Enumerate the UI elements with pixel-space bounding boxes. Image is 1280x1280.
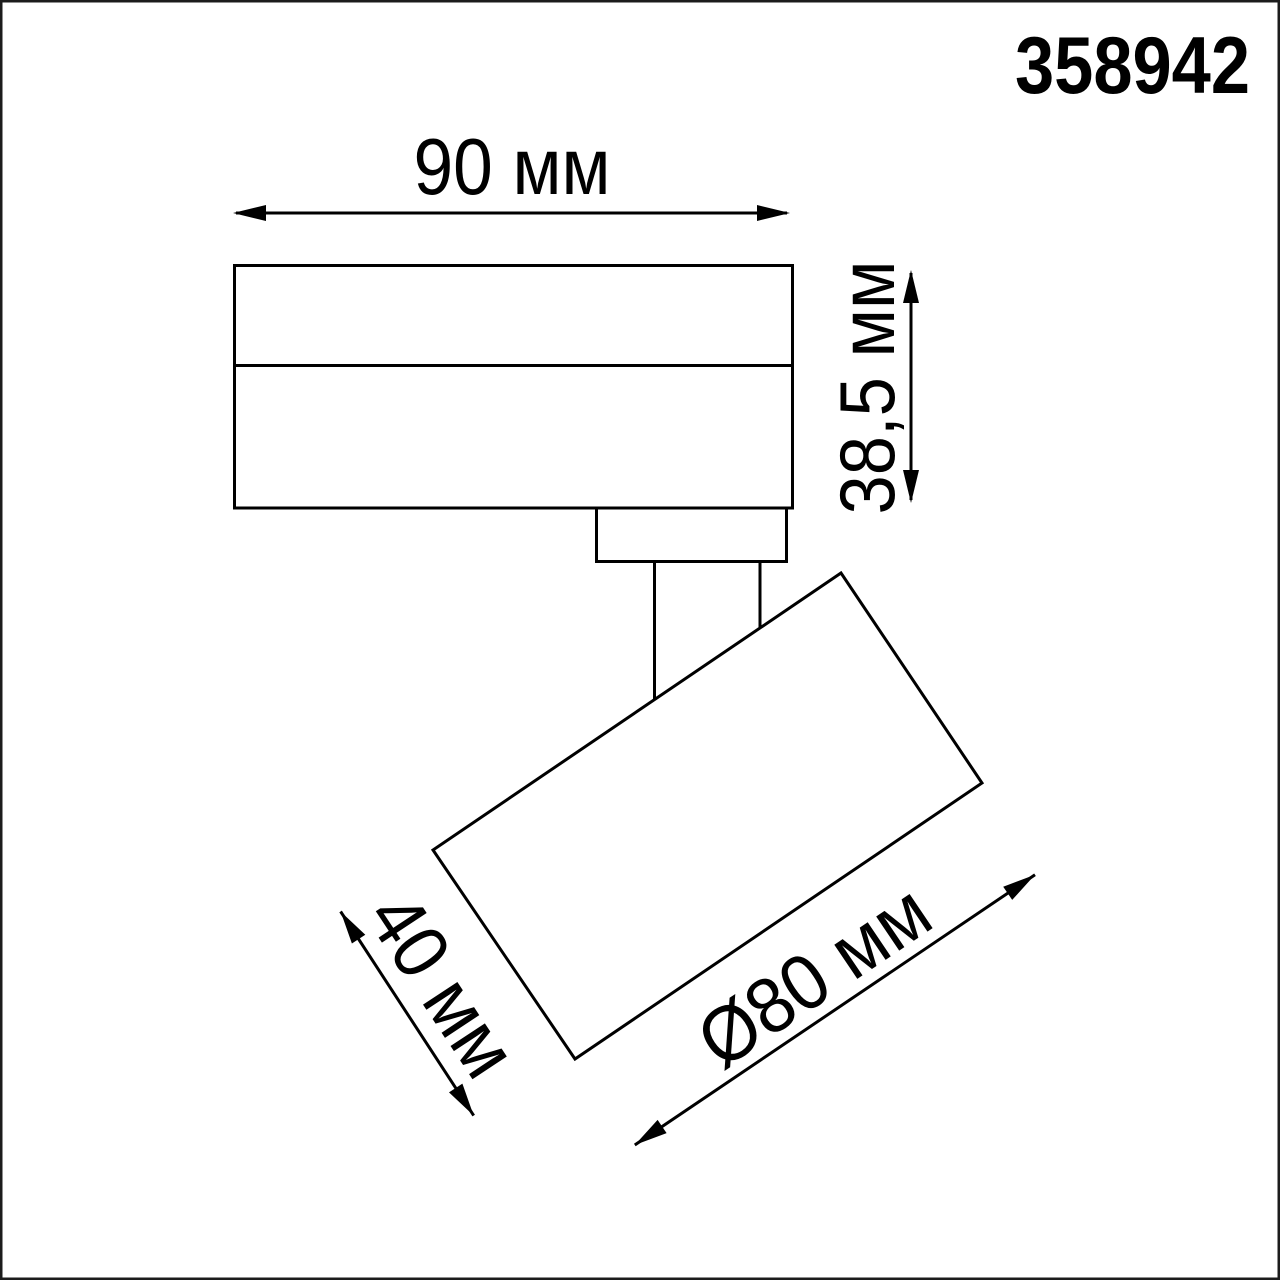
svg-text:90 мм: 90 мм (414, 122, 611, 211)
svg-text:38,5 мм: 38,5 мм (823, 261, 911, 515)
svg-text:358942: 358942 (1015, 21, 1250, 111)
